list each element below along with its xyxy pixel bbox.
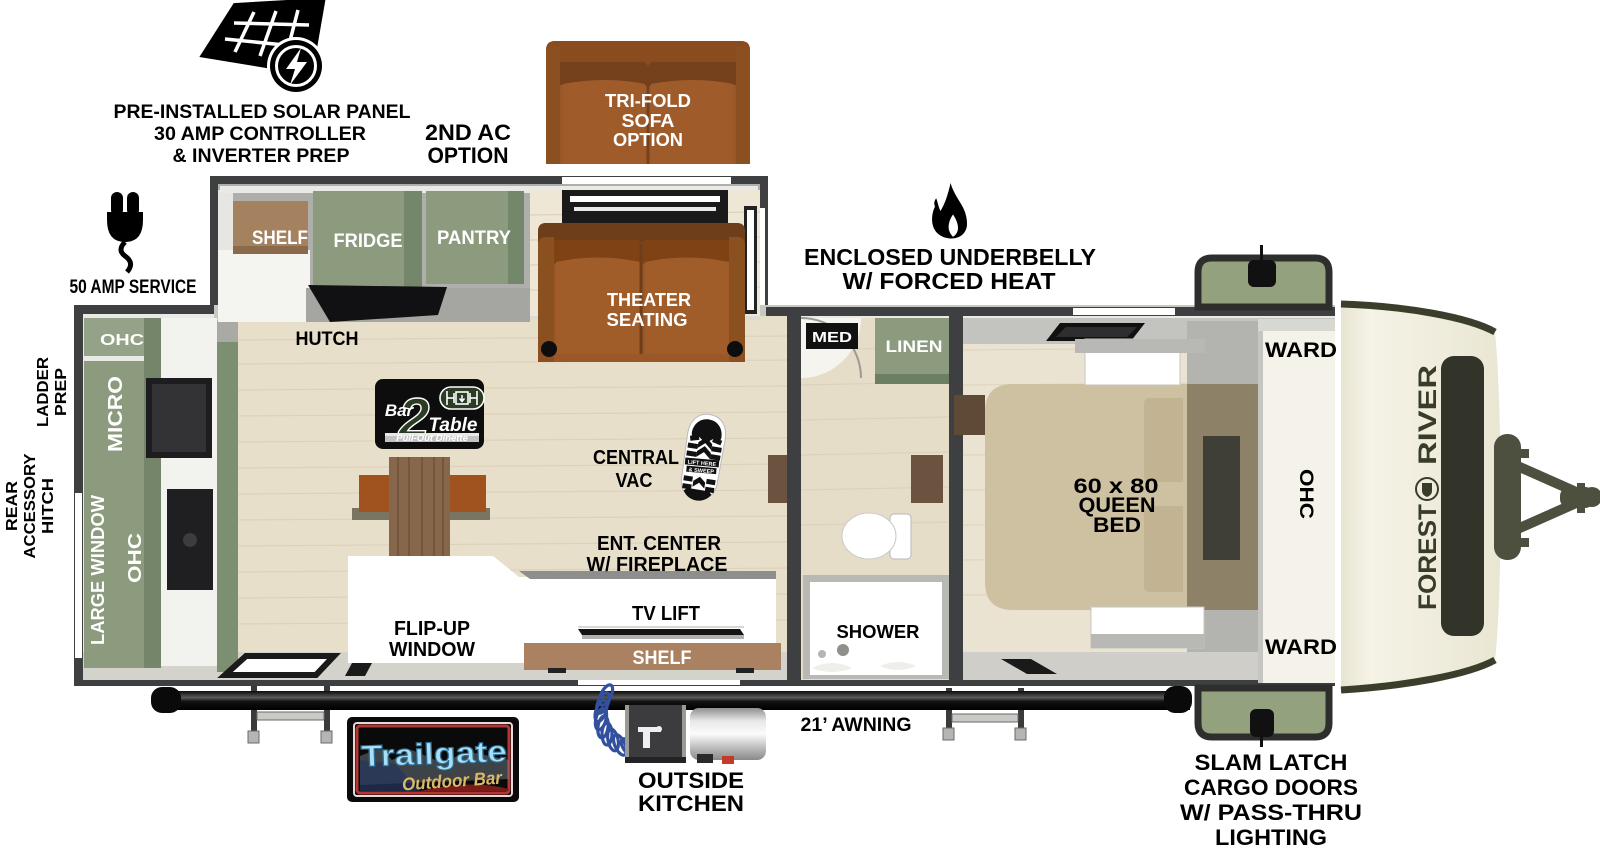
svg-text:W/ FIREPLACE: W/ FIREPLACE: [587, 554, 728, 576]
svg-text:W/ PASS-THRU: W/ PASS-THRU: [1180, 800, 1362, 825]
svg-text:OHC: OHC: [1295, 469, 1316, 519]
svg-text:OPTION: OPTION: [613, 130, 683, 150]
svg-text:VAC: VAC: [616, 470, 653, 492]
svg-text:OHC: OHC: [100, 332, 145, 349]
svg-text:ENT. CENTER: ENT. CENTER: [597, 533, 722, 555]
svg-text:MED: MED: [812, 329, 852, 346]
svg-text:21’ AWNING: 21’ AWNING: [801, 715, 912, 736]
svg-text:ENCLOSED UNDERBELLY: ENCLOSED UNDERBELLY: [804, 244, 1096, 270]
svg-text:TRI-FOLD: TRI-FOLD: [605, 91, 691, 111]
svg-text:LIGHTING: LIGHTING: [1215, 825, 1327, 849]
svg-text:OPTION: OPTION: [428, 143, 509, 168]
svg-text:50 AMP SERVICE: 50 AMP SERVICE: [70, 277, 197, 298]
svg-text:WINDOW: WINDOW: [389, 639, 475, 661]
svg-text:SLAM LATCH: SLAM LATCH: [1195, 750, 1348, 775]
svg-text:MICRO: MICRO: [105, 376, 127, 452]
svg-text:HUTCH: HUTCH: [296, 329, 359, 350]
svg-text:LADDER: LADDER: [35, 357, 52, 427]
svg-text:CARGO DOORS: CARGO DOORS: [1184, 775, 1358, 800]
svg-text:ACCESSORY: ACCESSORY: [22, 453, 39, 558]
svg-text:LINEN: LINEN: [886, 337, 943, 356]
svg-text:SHELF: SHELF: [252, 228, 308, 249]
svg-text:SHELF: SHELF: [633, 648, 692, 669]
svg-text:FOREST: FOREST: [1414, 504, 1442, 610]
svg-text:PANTRY: PANTRY: [437, 228, 511, 249]
svg-text:WARD: WARD: [1265, 636, 1337, 659]
svg-text:OHC: OHC: [125, 533, 145, 583]
svg-text:PRE-INSTALLED SOLAR PANEL: PRE-INSTALLED SOLAR PANEL: [114, 102, 411, 123]
svg-text:TV LIFT: TV LIFT: [632, 603, 700, 625]
svg-text:FRIDGE: FRIDGE: [334, 231, 403, 252]
svg-text:CENTRAL: CENTRAL: [593, 447, 679, 469]
svg-text:KITCHEN: KITCHEN: [638, 791, 744, 816]
svg-text:OUTSIDE: OUTSIDE: [638, 768, 744, 793]
svg-text:SOFA: SOFA: [622, 111, 675, 131]
svg-text:& INVERTER PREP: & INVERTER PREP: [173, 146, 350, 167]
svg-text:SEATING: SEATING: [607, 310, 688, 330]
svg-text:W/ FORCED HEAT: W/ FORCED HEAT: [843, 268, 1056, 294]
svg-text:FLIP-UP: FLIP-UP: [394, 618, 470, 640]
svg-text:REAR: REAR: [4, 481, 21, 531]
svg-text:SHOWER: SHOWER: [837, 622, 920, 642]
svg-text:WARD: WARD: [1265, 339, 1337, 362]
svg-text:RIVER: RIVER: [1414, 365, 1442, 465]
svg-text:THEATER: THEATER: [607, 290, 691, 310]
svg-text:BED: BED: [1093, 514, 1141, 537]
svg-text:LARGE WINDOW: LARGE WINDOW: [88, 495, 108, 645]
svg-text:PREP: PREP: [53, 368, 70, 416]
svg-text:2ND AC: 2ND AC: [425, 120, 511, 145]
svg-text:HITCH: HITCH: [40, 478, 57, 534]
svg-text:Pull-Out Dinette: Pull-Out Dinette: [396, 433, 468, 444]
svg-text:30 AMP CONTROLLER: 30 AMP CONTROLLER: [154, 124, 366, 145]
